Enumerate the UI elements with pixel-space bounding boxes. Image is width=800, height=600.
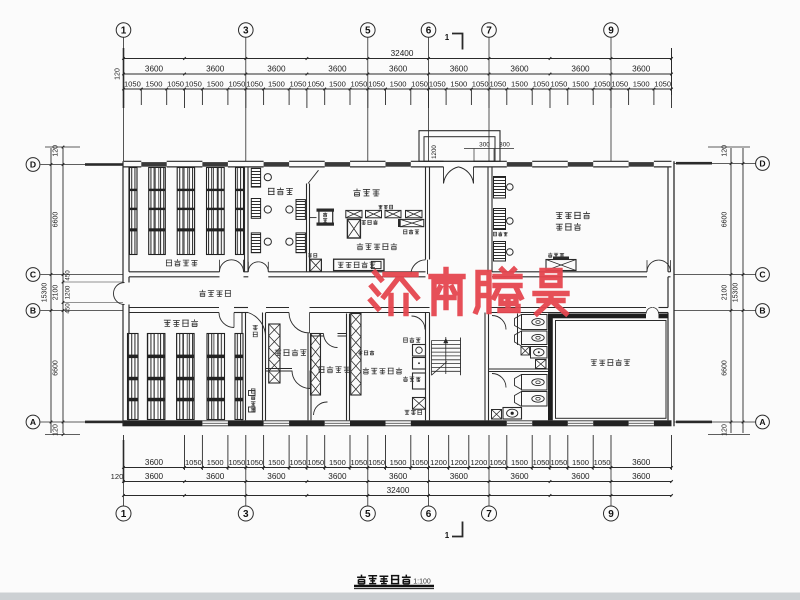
svg-text:1500: 1500 <box>511 80 528 89</box>
svg-text:120: 120 <box>53 424 60 436</box>
svg-text:1500: 1500 <box>268 80 285 89</box>
svg-text:1500: 1500 <box>450 80 467 89</box>
svg-text:A: A <box>759 417 765 427</box>
svg-text:1050: 1050 <box>290 458 307 467</box>
svg-text:1050: 1050 <box>307 458 324 467</box>
svg-text:15300: 15300 <box>733 283 740 303</box>
svg-text:1050: 1050 <box>594 458 611 467</box>
svg-text:120: 120 <box>53 145 60 157</box>
svg-text:3600: 3600 <box>510 65 529 74</box>
svg-text:1200: 1200 <box>450 458 467 467</box>
svg-text:6600: 6600 <box>722 360 729 376</box>
svg-text:1500: 1500 <box>146 80 163 89</box>
svg-text:1200: 1200 <box>65 285 72 299</box>
svg-text:1: 1 <box>121 26 127 37</box>
svg-text:7: 7 <box>486 26 492 37</box>
svg-text:1200: 1200 <box>430 458 447 467</box>
svg-text:1050: 1050 <box>167 80 184 89</box>
svg-text:1050: 1050 <box>550 458 567 467</box>
svg-text:3600: 3600 <box>510 472 529 481</box>
svg-text:9: 9 <box>608 509 614 520</box>
svg-text:1200: 1200 <box>431 145 438 159</box>
svg-text:B: B <box>759 306 765 316</box>
svg-text:2100: 2100 <box>53 285 60 301</box>
svg-text:1500: 1500 <box>390 458 407 467</box>
svg-text:1050: 1050 <box>124 80 141 89</box>
svg-text:1050: 1050 <box>228 458 245 467</box>
svg-text:1500: 1500 <box>329 458 346 467</box>
svg-text:1050: 1050 <box>594 80 611 89</box>
svg-text:3600: 3600 <box>267 472 286 481</box>
svg-text:3600: 3600 <box>632 458 651 467</box>
svg-text:1050: 1050 <box>550 80 567 89</box>
svg-text:2100: 2100 <box>722 285 729 301</box>
svg-text:C: C <box>30 270 36 280</box>
svg-text:450: 450 <box>65 303 72 314</box>
svg-text:D: D <box>759 159 765 169</box>
svg-text:3600: 3600 <box>632 65 651 74</box>
svg-text:1050: 1050 <box>185 80 202 89</box>
svg-text:15300: 15300 <box>42 283 49 303</box>
svg-text:7: 7 <box>486 509 492 520</box>
svg-text:A: A <box>30 417 36 427</box>
svg-text:3600: 3600 <box>389 65 408 74</box>
svg-text:1500: 1500 <box>572 80 589 89</box>
svg-text:1050: 1050 <box>654 80 671 89</box>
svg-text:3600: 3600 <box>571 472 590 481</box>
svg-text:6600: 6600 <box>53 360 60 376</box>
svg-text:1050: 1050 <box>246 458 263 467</box>
svg-text:1050: 1050 <box>228 80 245 89</box>
svg-text:1500: 1500 <box>207 458 224 467</box>
svg-text:D: D <box>30 160 36 170</box>
svg-text:1500: 1500 <box>390 80 407 89</box>
svg-text:1050: 1050 <box>411 458 428 467</box>
svg-text:5: 5 <box>365 26 371 37</box>
svg-text:1:100: 1:100 <box>413 579 431 586</box>
svg-text:6: 6 <box>426 509 432 520</box>
svg-text:1050: 1050 <box>368 80 385 89</box>
svg-text:32400: 32400 <box>391 49 414 58</box>
svg-text:1050: 1050 <box>185 458 202 467</box>
svg-text:1050: 1050 <box>350 458 367 467</box>
svg-text:1050: 1050 <box>368 458 385 467</box>
svg-text:3600: 3600 <box>145 472 164 481</box>
svg-text:3600: 3600 <box>206 472 225 481</box>
svg-text:1500: 1500 <box>572 458 589 467</box>
svg-text:3600: 3600 <box>632 472 651 481</box>
svg-text:3600: 3600 <box>267 65 286 74</box>
svg-text:300: 300 <box>479 141 490 148</box>
svg-text:1: 1 <box>445 33 450 42</box>
svg-text:450: 450 <box>65 270 72 281</box>
svg-text:3: 3 <box>243 509 249 520</box>
svg-text:120: 120 <box>115 68 122 80</box>
svg-text:1500: 1500 <box>633 80 650 89</box>
svg-text:1050: 1050 <box>350 80 367 89</box>
svg-text:3600: 3600 <box>450 65 469 74</box>
svg-text:3600: 3600 <box>450 472 469 481</box>
svg-text:3600: 3600 <box>389 472 408 481</box>
svg-text:1050: 1050 <box>533 458 550 467</box>
svg-text:1050: 1050 <box>533 80 550 89</box>
svg-text:1050: 1050 <box>472 80 489 89</box>
svg-text:C: C <box>759 270 765 280</box>
svg-text:32400: 32400 <box>387 486 410 495</box>
svg-text:1050: 1050 <box>411 80 428 89</box>
svg-text:1200: 1200 <box>470 458 487 467</box>
svg-text:120: 120 <box>722 424 729 436</box>
svg-text:120: 120 <box>722 145 729 157</box>
svg-text:3600: 3600 <box>145 65 164 74</box>
svg-text:3600: 3600 <box>328 65 347 74</box>
svg-text:B: B <box>30 306 36 316</box>
svg-text:3600: 3600 <box>571 65 590 74</box>
svg-text:1500: 1500 <box>329 80 346 89</box>
svg-text:300: 300 <box>499 141 510 148</box>
svg-text:1: 1 <box>445 531 450 540</box>
svg-text:3600: 3600 <box>145 458 164 467</box>
svg-text:120: 120 <box>111 472 124 481</box>
svg-text:1: 1 <box>121 509 127 520</box>
svg-text:1050: 1050 <box>307 80 324 89</box>
svg-text:1050: 1050 <box>489 80 506 89</box>
svg-text:1050: 1050 <box>489 458 506 467</box>
svg-text:3600: 3600 <box>206 65 225 74</box>
svg-text:1050: 1050 <box>429 80 446 89</box>
svg-text:1050: 1050 <box>290 80 307 89</box>
svg-text:1500: 1500 <box>207 80 224 89</box>
svg-text:1050: 1050 <box>246 80 263 89</box>
svg-text:5: 5 <box>365 509 371 520</box>
svg-text:9: 9 <box>608 26 614 37</box>
svg-text:6600: 6600 <box>722 212 729 228</box>
svg-text:1050: 1050 <box>611 80 628 89</box>
svg-text:3600: 3600 <box>328 472 347 481</box>
svg-text:1500: 1500 <box>511 458 528 467</box>
svg-text:6600: 6600 <box>53 212 60 228</box>
svg-text:1500: 1500 <box>268 458 285 467</box>
svg-text:3: 3 <box>243 26 249 37</box>
svg-text:6: 6 <box>426 26 432 37</box>
